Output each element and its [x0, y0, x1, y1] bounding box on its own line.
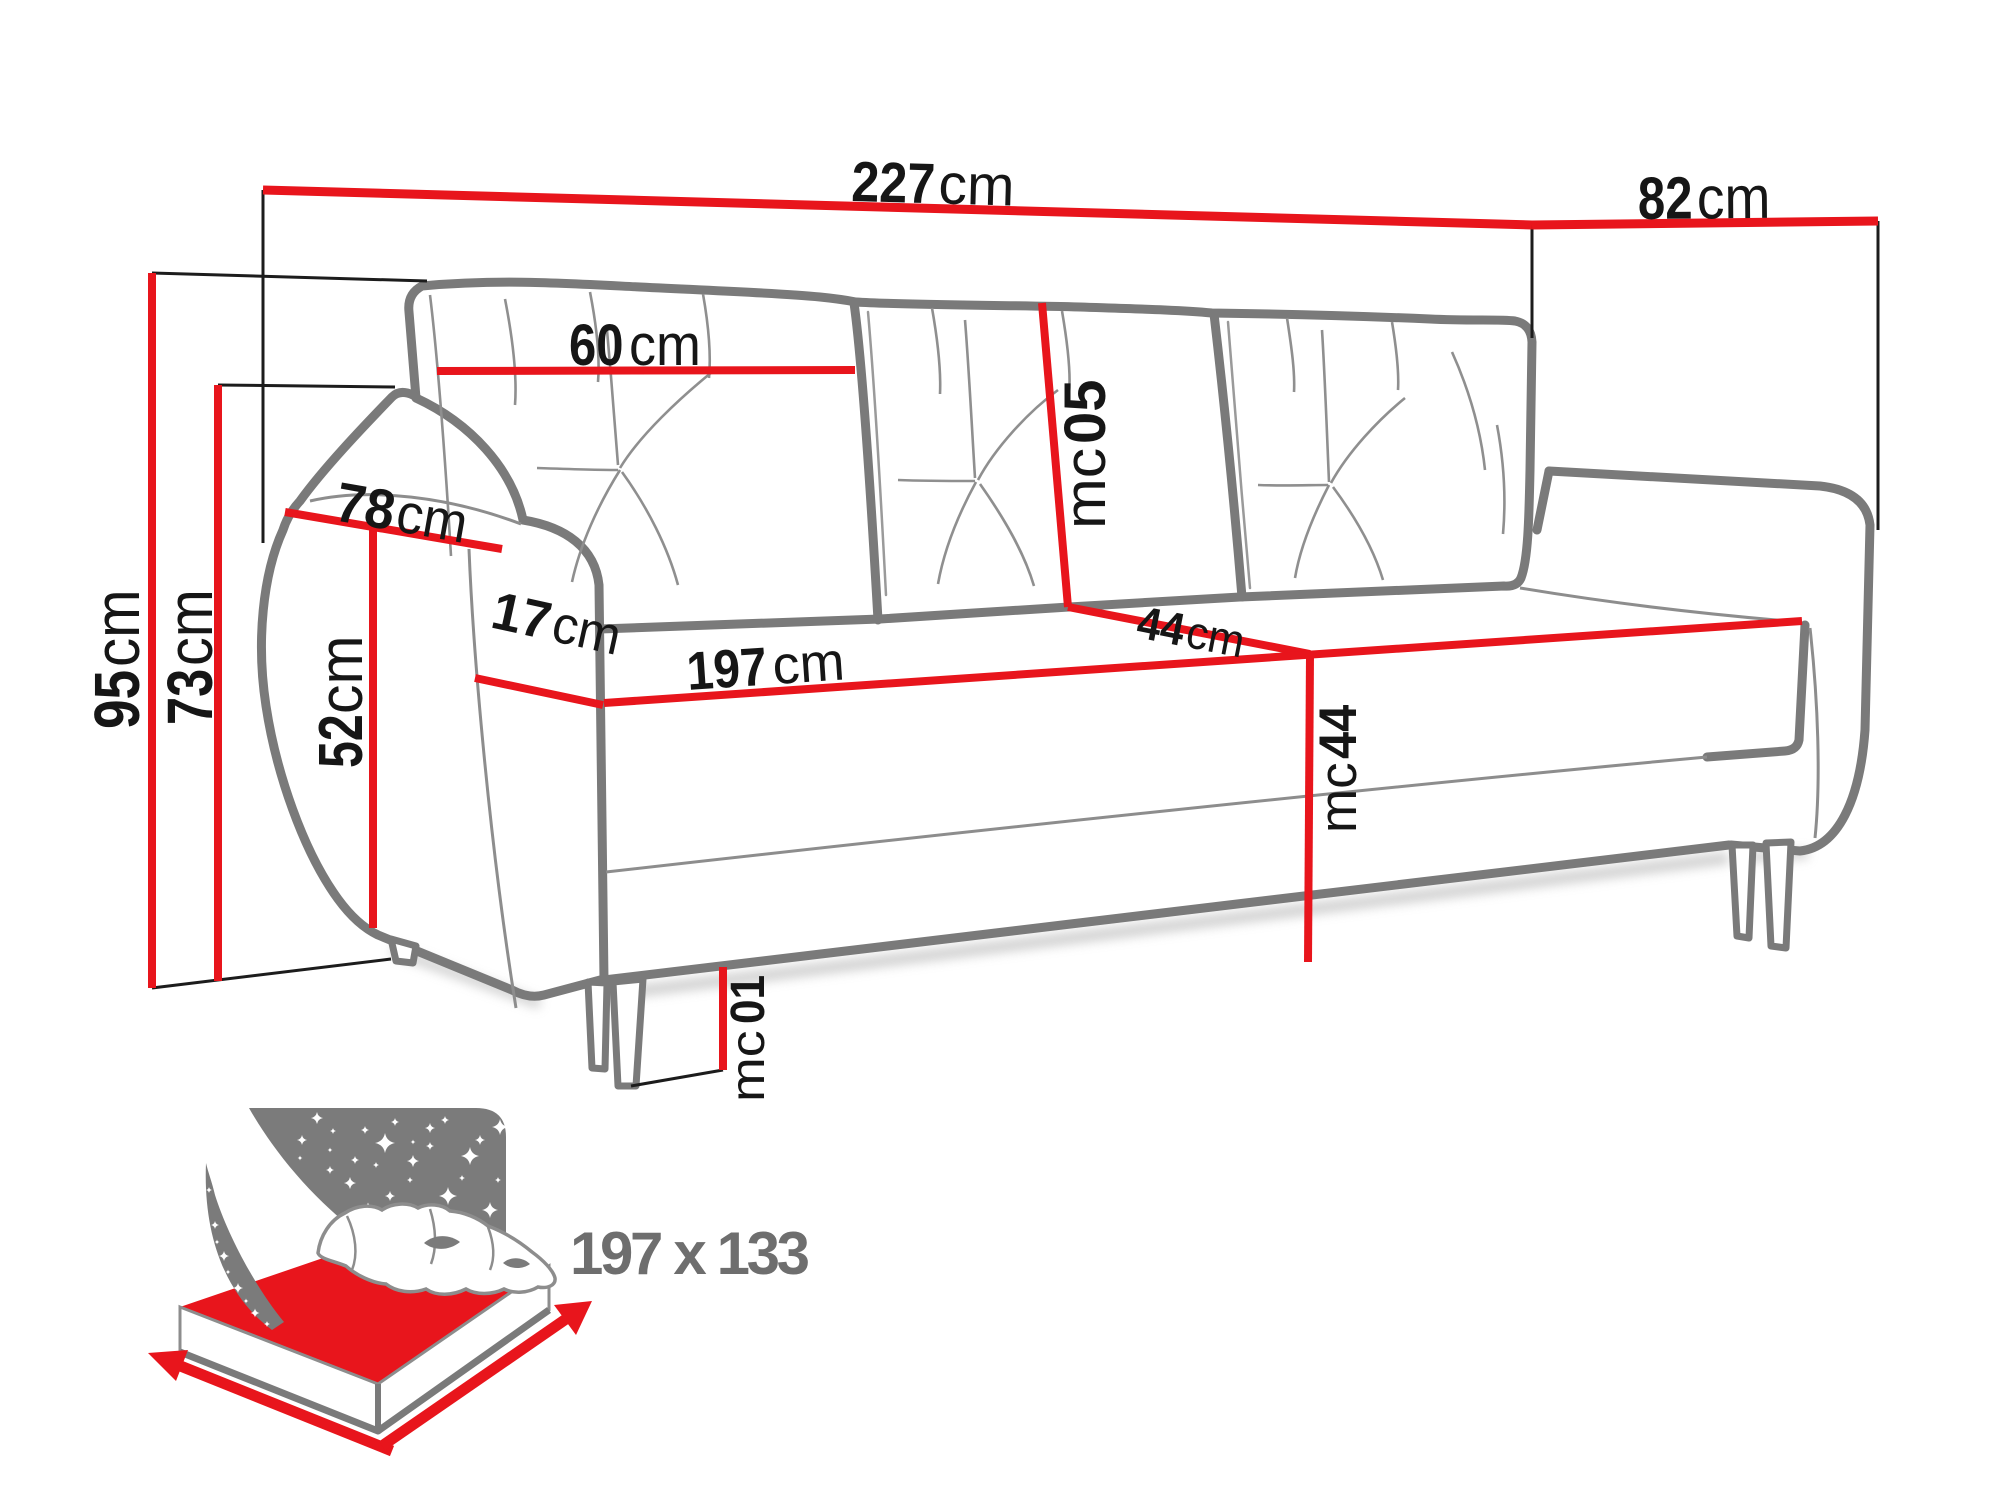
svg-text:95: 95 [82, 670, 153, 729]
svg-text:cm: cm [306, 635, 376, 714]
svg-text:cm: cm [938, 152, 1016, 218]
svg-text:cm: cm [1182, 605, 1249, 667]
svg-text:cm: cm [392, 481, 473, 555]
svg-text:78: 78 [331, 471, 400, 543]
svg-text:73: 73 [155, 669, 226, 725]
svg-text:05: 05 [1053, 379, 1118, 444]
svg-text:52: 52 [306, 714, 375, 768]
svg-text:cm: cm [771, 631, 847, 696]
svg-text:mc: mc [721, 1030, 775, 1102]
svg-text:197 x 133: 197 x 133 [570, 1220, 810, 1287]
svg-text:44: 44 [1308, 704, 1367, 759]
svg-text:44: 44 [1133, 597, 1189, 656]
svg-text:197: 197 [685, 636, 769, 702]
svg-text:cm: cm [81, 589, 152, 667]
svg-text:60: 60 [569, 313, 624, 378]
svg-text:cm: cm [629, 312, 701, 377]
svg-text:227: 227 [851, 150, 936, 216]
svg-text:82: 82 [1638, 164, 1693, 232]
svg-text:cm: cm [154, 589, 225, 666]
svg-text:cm: cm [1697, 165, 1771, 232]
svg-text:01: 01 [720, 975, 774, 1024]
svg-text:mc: mc [1309, 762, 1368, 833]
svg-text:mc: mc [1052, 448, 1117, 529]
svg-text:17: 17 [486, 581, 556, 651]
